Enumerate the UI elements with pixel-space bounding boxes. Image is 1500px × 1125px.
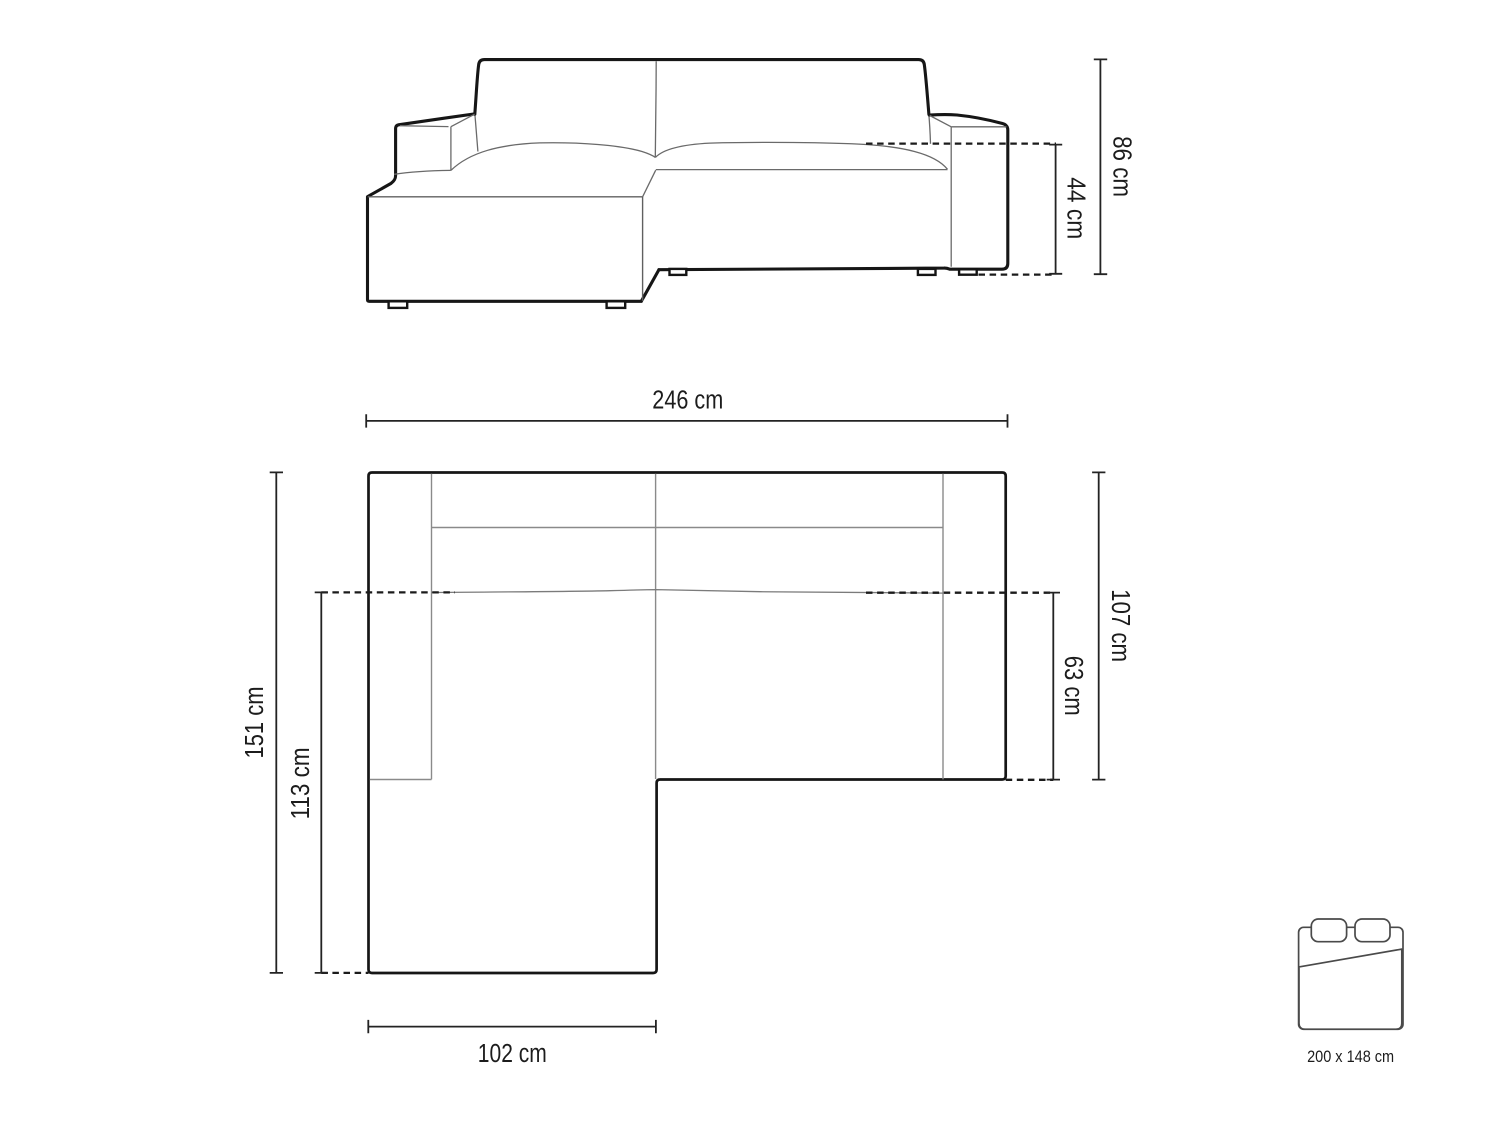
svg-text:107 cm: 107 cm	[1106, 589, 1134, 662]
svg-text:151 cm: 151 cm	[241, 687, 269, 759]
svg-text:102 cm: 102 cm	[478, 1040, 547, 1068]
svg-text:63 cm: 63 cm	[1059, 656, 1087, 716]
svg-text:246 cm: 246 cm	[652, 387, 723, 415]
svg-text:86 cm: 86 cm	[1107, 136, 1135, 197]
svg-text:113 cm: 113 cm	[287, 747, 315, 819]
svg-text:200 x 148 cm: 200 x 148 cm	[1307, 1048, 1394, 1066]
svg-text:44 cm: 44 cm	[1062, 177, 1090, 239]
